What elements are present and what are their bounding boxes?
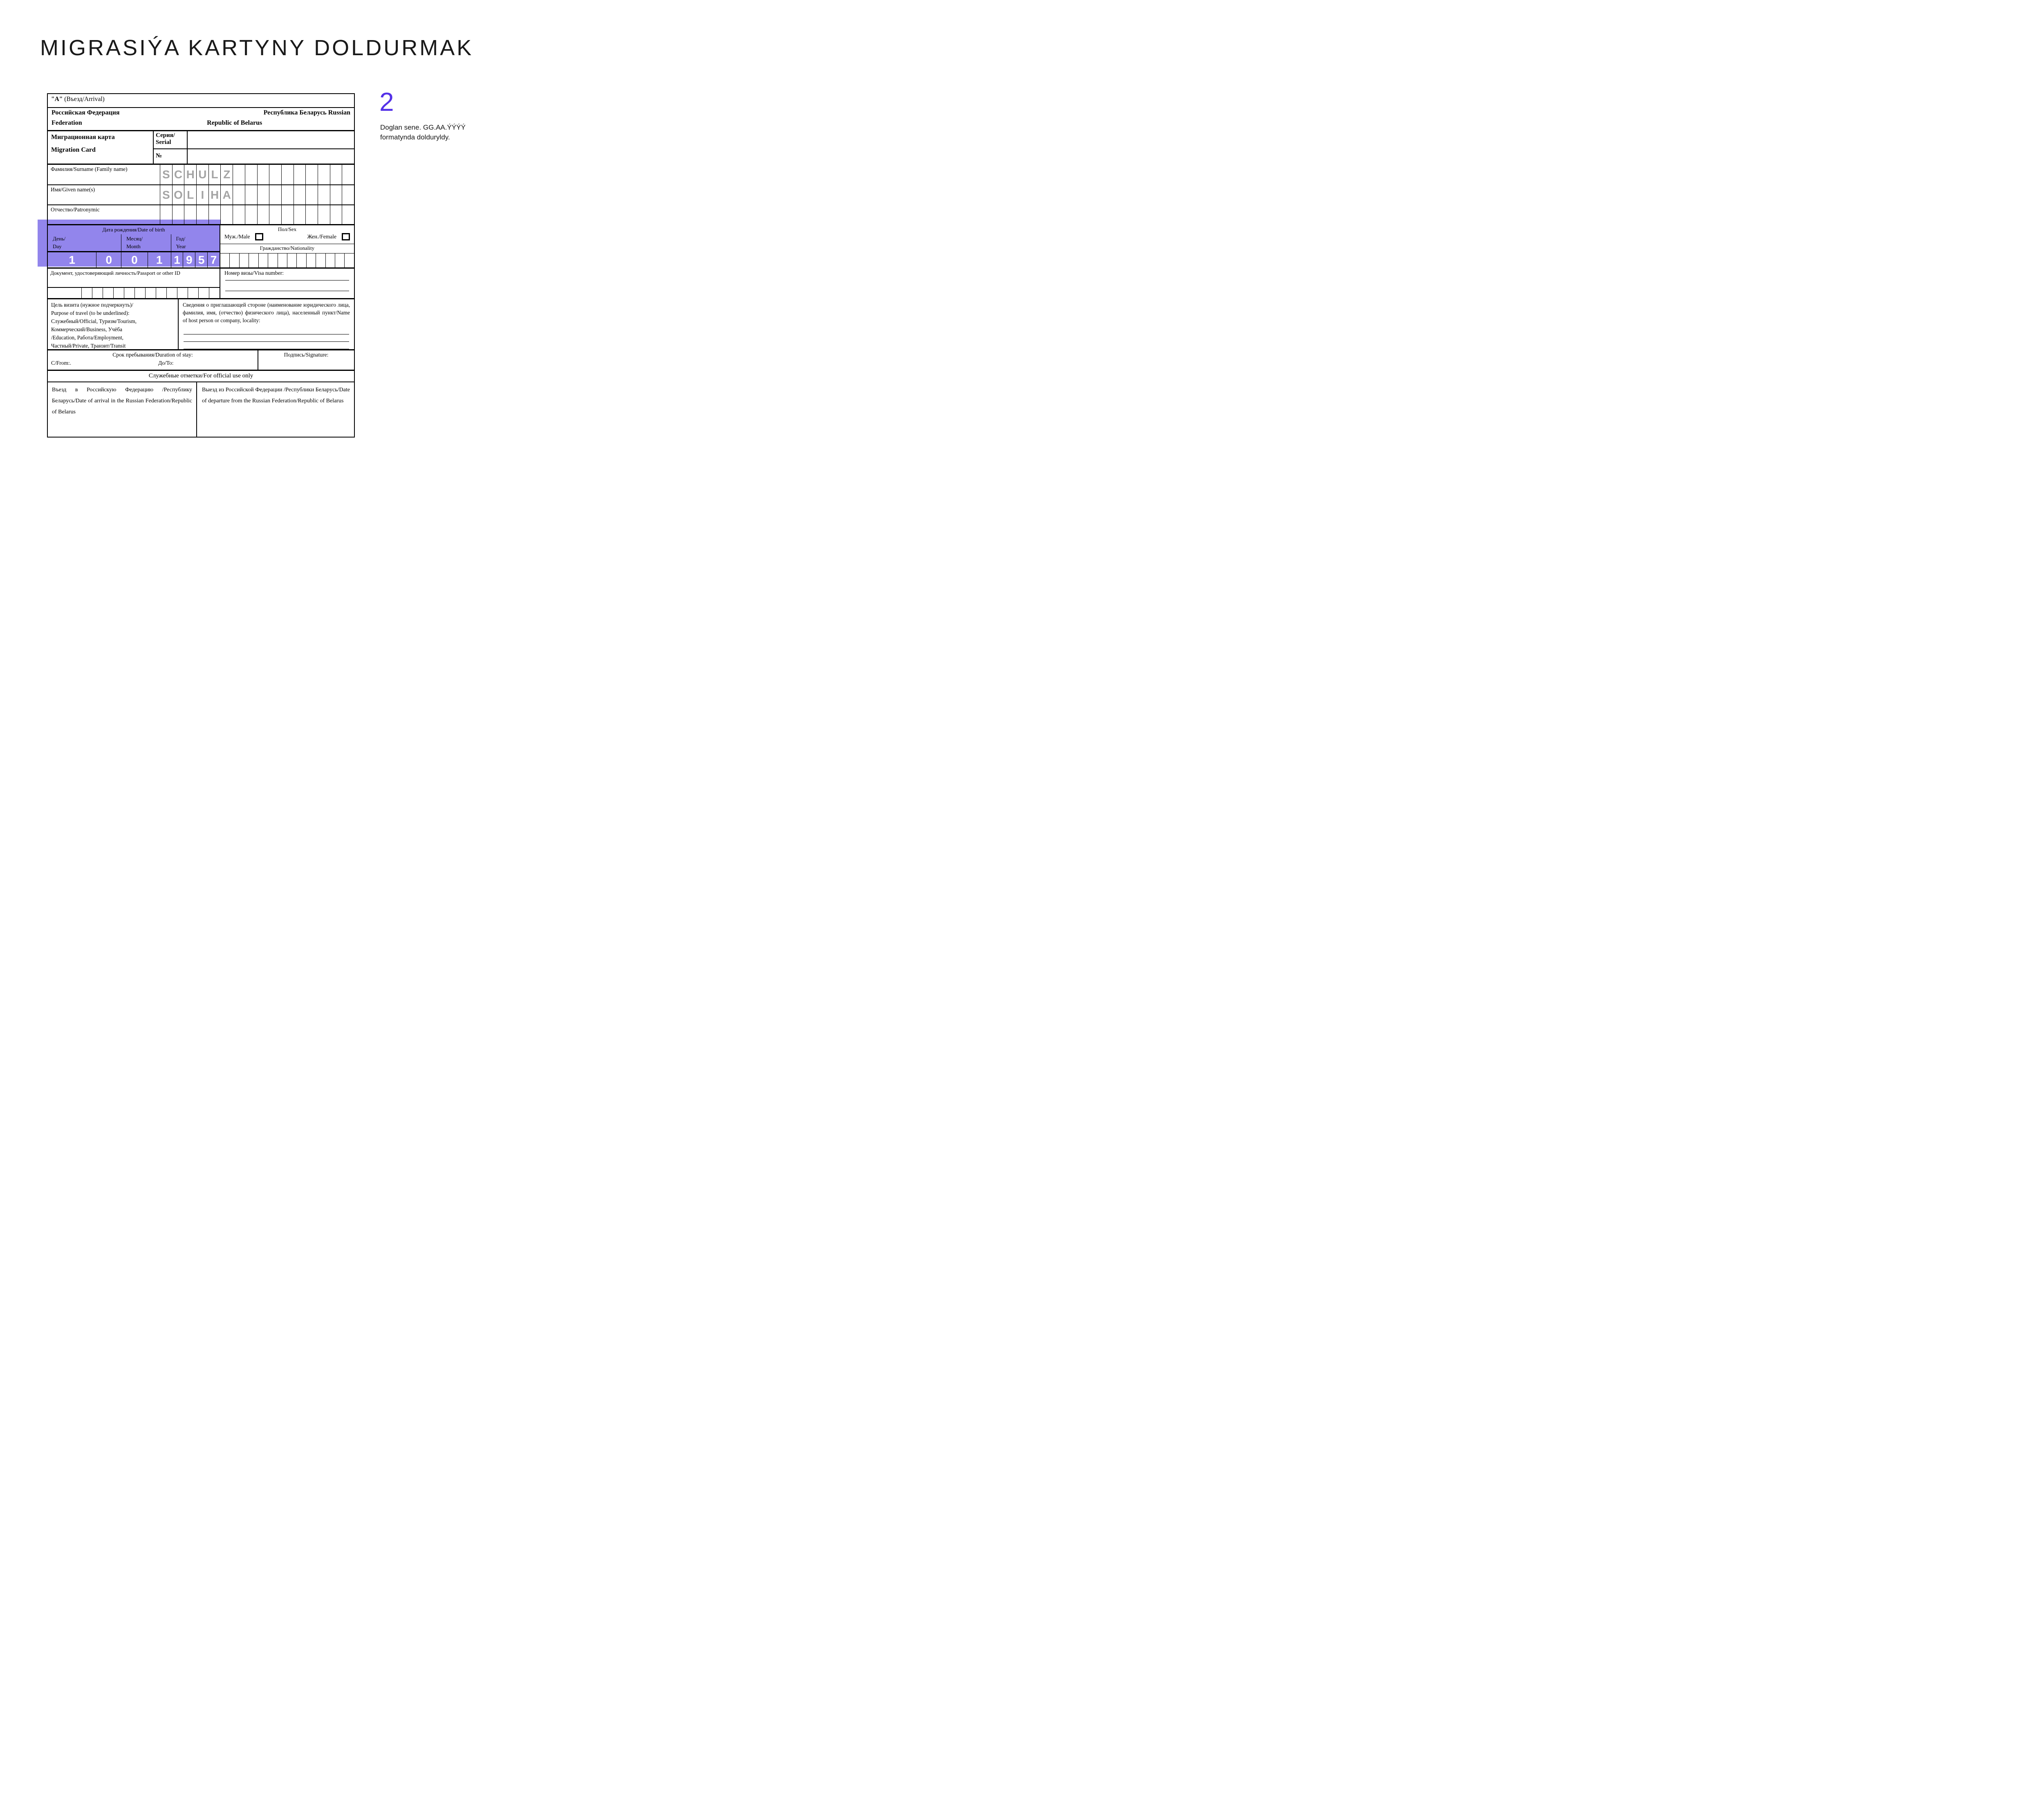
char-cell[interactable] <box>294 205 306 224</box>
migration-card-form: "А" (Въезд/Arrival) Российская Федерация… <box>47 93 355 438</box>
male-label: Муж./Male <box>224 233 250 240</box>
serial-row: Серия/ Serial <box>154 131 354 149</box>
passport-cell-band <box>48 287 220 298</box>
purpose-line: Цель визита (нужное подчеркнуть)/ <box>51 301 175 309</box>
char-cell[interactable] <box>269 185 281 204</box>
char-cell[interactable] <box>245 165 257 184</box>
char-cell[interactable] <box>113 288 124 298</box>
date-of-birth-block: Дата рождения/Date of birth День/ Day Ме… <box>48 225 220 267</box>
surname-cells: SCHULZ <box>160 165 354 184</box>
char-cell[interactable] <box>268 254 277 267</box>
card-serial-row: Миграционная карта Migration Card Серия/… <box>48 131 354 165</box>
country-ru-left: Российская Федерация <box>52 109 120 117</box>
host-writing-line[interactable] <box>184 349 349 349</box>
char-cell[interactable] <box>344 254 354 267</box>
purpose-line: Коммерческий/Business, Учёба <box>51 325 175 334</box>
char-cell[interactable] <box>330 185 342 204</box>
surname-label: Фамилия/Surname (Family name) <box>48 165 160 184</box>
sex-nationality-block: Пол/Sex Муж./Male Жен./Female Гражданств… <box>220 225 354 267</box>
card-title: Миграционная карта Migration Card <box>48 131 154 164</box>
visa-writing-line[interactable] <box>225 291 349 291</box>
dob-sex-section: Дата рождения/Date of birth День/ Day Ме… <box>48 225 354 269</box>
char-cell[interactable] <box>184 205 196 224</box>
char-cell[interactable] <box>245 205 257 224</box>
stay-to-label: До/To: <box>158 360 174 366</box>
char-cell[interactable] <box>233 185 245 204</box>
step-number: 2 <box>379 87 394 117</box>
sex-title: Пол/Sex <box>220 225 354 233</box>
char-cell[interactable] <box>287 254 296 267</box>
passport-block: Документ, удостоверяющий личность/Passpo… <box>48 269 220 298</box>
char-cell[interactable] <box>233 205 245 224</box>
purpose-line: /Education, Работа/Employment, <box>51 334 175 342</box>
dob-digit-cell[interactable]: 0 <box>121 252 148 267</box>
char-cell[interactable] <box>220 205 233 224</box>
char-cell[interactable] <box>257 185 269 204</box>
dob-title: Дата рождения/Date of birth <box>48 225 220 233</box>
stay-signature-section: Срок пребывания/Duration of stay: С/From… <box>48 350 354 371</box>
char-cell[interactable] <box>342 185 354 204</box>
char-cell[interactable] <box>103 288 113 298</box>
char-cell[interactable] <box>208 205 221 224</box>
visa-block: Номер визы/Visa number: <box>220 269 354 298</box>
char-cell[interactable] <box>269 165 281 184</box>
char-cell[interactable] <box>134 288 145 298</box>
char-cell[interactable] <box>281 185 294 204</box>
char-cell[interactable] <box>330 165 342 184</box>
arrival-departure-section: Въезд в Российскую Федерацию /Республику… <box>48 382 354 437</box>
given-name-label: Имя/Given name(s) <box>48 185 160 204</box>
char-cell[interactable]: I <box>196 185 208 204</box>
host-info: Сведения о приглашающей стороне (наимено… <box>179 299 354 349</box>
section-a-label: (Въезд/Arrival) <box>63 96 104 103</box>
host-writing-line[interactable] <box>184 341 349 342</box>
dob-digit-cell[interactable]: 7 <box>207 252 220 267</box>
char-cell[interactable]: C <box>172 165 184 184</box>
nationality-cells <box>220 253 354 267</box>
char-cell[interactable] <box>82 288 92 298</box>
serial-label: Серия/ Serial <box>154 131 188 148</box>
char-cell[interactable] <box>318 205 330 224</box>
char-cell[interactable]: U <box>196 165 208 184</box>
char-cell[interactable] <box>124 288 134 298</box>
char-cell[interactable] <box>330 205 342 224</box>
char-cell[interactable] <box>166 288 177 298</box>
passport-visa-section: Документ, удостоверяющий личность/Passpo… <box>48 269 354 299</box>
char-cell[interactable] <box>258 254 268 267</box>
section-a-letter: "А" <box>51 96 63 103</box>
char-cell[interactable] <box>335 254 344 267</box>
male-checkbox[interactable] <box>255 233 263 240</box>
dob-digit-cell[interactable]: 1 <box>148 252 171 267</box>
char-cell[interactable]: Z <box>220 165 233 184</box>
char-cell[interactable] <box>233 165 245 184</box>
passport-wide-cell[interactable] <box>48 288 81 298</box>
given-name-cells: SOLIHA <box>160 185 354 204</box>
purpose-line: Служебный/Official, Туризм/Tourism, <box>51 317 175 325</box>
char-cell[interactable] <box>209 288 220 298</box>
date-of-departure-block: Выезд из Российской Федерации /Республик… <box>197 382 354 437</box>
dob-digit-cell[interactable]: 0 <box>96 252 121 267</box>
char-cell[interactable] <box>296 254 306 267</box>
char-cell[interactable]: L <box>184 185 196 204</box>
char-cell[interactable] <box>281 205 294 224</box>
char-cell[interactable] <box>269 205 281 224</box>
passport-cells <box>81 288 220 298</box>
char-cell[interactable] <box>239 254 249 267</box>
duration-title: Срок пребывания/Duration of stay: <box>48 350 258 358</box>
char-cell[interactable]: A <box>220 185 233 204</box>
char-cell[interactable] <box>306 254 316 267</box>
card-title-ru: Миграционная карта <box>51 134 150 141</box>
dob-digit-cell[interactable]: 5 <box>195 252 207 267</box>
number-sign-label: № <box>154 149 188 164</box>
signature-label: Подпись/Signature: <box>284 352 329 358</box>
card-title-en: Migration Card <box>51 146 150 154</box>
serial-region: Серия/ Serial № <box>154 131 354 164</box>
visa-writing-line[interactable] <box>225 280 349 281</box>
char-cell[interactable] <box>325 254 335 267</box>
char-cell[interactable]: H <box>208 185 221 204</box>
country-en-left: Federation <box>52 119 82 126</box>
char-cell[interactable] <box>196 205 208 224</box>
dob-month-label: Месяц/ Month <box>121 234 170 251</box>
page-title: MIGRASIÝA KARTYNY DOLDURMAK <box>40 35 473 61</box>
page: MIGRASIÝA KARTYNY DOLDURMAK "А" (Въезд/A… <box>0 0 632 462</box>
duration-of-stay: Срок пребывания/Duration of stay: С/From… <box>48 350 258 370</box>
char-cell[interactable] <box>342 165 354 184</box>
dob-digit-cells: 1 0 0 1 1 9 5 7 <box>48 251 220 267</box>
purpose-host-section: Цель визита (нужное подчеркнуть)/ Purpos… <box>48 299 354 350</box>
surname-row: Фамилия/Surname (Family name) SCHULZ <box>48 165 354 185</box>
char-cell[interactable] <box>156 288 166 298</box>
char-cell[interactable] <box>342 205 354 224</box>
female-checkbox[interactable] <box>342 233 350 240</box>
country-en-right: Republic of Belarus <box>207 119 262 127</box>
date-of-arrival-block: Въезд в Российскую Федерацию /Республику… <box>48 382 197 437</box>
char-cell[interactable]: H <box>184 165 196 184</box>
passport-label: Документ, удостоверяющий личность/Passpo… <box>48 269 220 278</box>
char-cell[interactable]: S <box>160 185 172 204</box>
char-cell[interactable]: O <box>172 185 184 204</box>
char-cell[interactable] <box>160 205 172 224</box>
dob-digit-cell[interactable]: 1 <box>48 252 96 267</box>
char-cell[interactable] <box>316 254 325 267</box>
char-cell[interactable] <box>172 205 184 224</box>
char-cell[interactable] <box>318 165 330 184</box>
given-name-row: Имя/Given name(s) SOLIHA <box>48 185 354 205</box>
char-cell[interactable] <box>249 254 258 267</box>
char-cell[interactable] <box>145 288 156 298</box>
section-a-row: "А" (Въезд/Arrival) <box>48 94 354 108</box>
countries-header: Российская Федерация Республика Беларусь… <box>48 108 354 131</box>
purpose-line: Purpose of travel (to be underlined): <box>51 309 175 317</box>
official-use-row: Служебные отметки/For official use only <box>48 371 354 382</box>
host-writing-line[interactable] <box>184 334 349 334</box>
char-cell[interactable] <box>92 288 103 298</box>
nationality-label: Гражданство/Nationality <box>220 244 354 253</box>
country-ru-right: Республика Беларусь Russian <box>264 109 350 117</box>
char-cell[interactable] <box>305 185 318 204</box>
female-label: Жен./Female <box>307 233 337 240</box>
char-cell[interactable] <box>278 254 287 267</box>
dob-year-label: Год/ Year <box>171 234 220 251</box>
dob-digit-cell[interactable]: 9 <box>183 252 195 267</box>
char-cell[interactable] <box>305 205 318 224</box>
signature-block: Подпись/Signature: <box>258 350 354 370</box>
char-cell[interactable] <box>198 288 209 298</box>
host-info-text: Сведения о приглашающей стороне (наимено… <box>183 302 350 323</box>
char-cell[interactable] <box>188 288 198 298</box>
char-cell[interactable] <box>305 165 318 184</box>
purpose-line: Частный/Private, Транзит/Transit <box>51 342 175 350</box>
char-cell[interactable] <box>318 185 330 204</box>
char-cell[interactable] <box>294 165 306 184</box>
visa-label: Номер визы/Visa number: <box>220 269 354 278</box>
purpose-of-travel: Цель визита (нужное подчеркнуть)/ Purpos… <box>48 299 179 349</box>
dob-day-label: День/ Day <box>48 234 121 251</box>
char-cell[interactable] <box>257 165 269 184</box>
patronymic-cells <box>160 205 354 224</box>
char-cell[interactable] <box>229 254 239 267</box>
char-cell[interactable]: S <box>160 165 172 184</box>
char-cell[interactable] <box>220 254 229 267</box>
stay-from-label: С/From:. <box>51 360 71 366</box>
official-use-label: Служебные отметки/For official use only <box>149 373 253 379</box>
sex-block: Пол/Sex Муж./Male Жен./Female <box>220 225 354 244</box>
step-caption: Doglan sene. GG.AA.ÝÝÝÝ formatynda doldu… <box>380 123 491 142</box>
patronymic-label: Отчество/Patronymic <box>48 205 160 224</box>
number-row: № <box>154 149 354 164</box>
dob-labels: День/ Day Месяц/ Month Год/ Year <box>48 234 220 251</box>
char-cell[interactable] <box>281 165 294 184</box>
patronymic-row: Отчество/Patronymic <box>48 205 354 225</box>
char-cell[interactable] <box>257 205 269 224</box>
dob-digit-cell[interactable]: 1 <box>171 252 183 267</box>
char-cell[interactable] <box>177 288 188 298</box>
char-cell[interactable]: L <box>208 165 221 184</box>
char-cell[interactable] <box>294 185 306 204</box>
char-cell[interactable] <box>245 185 257 204</box>
